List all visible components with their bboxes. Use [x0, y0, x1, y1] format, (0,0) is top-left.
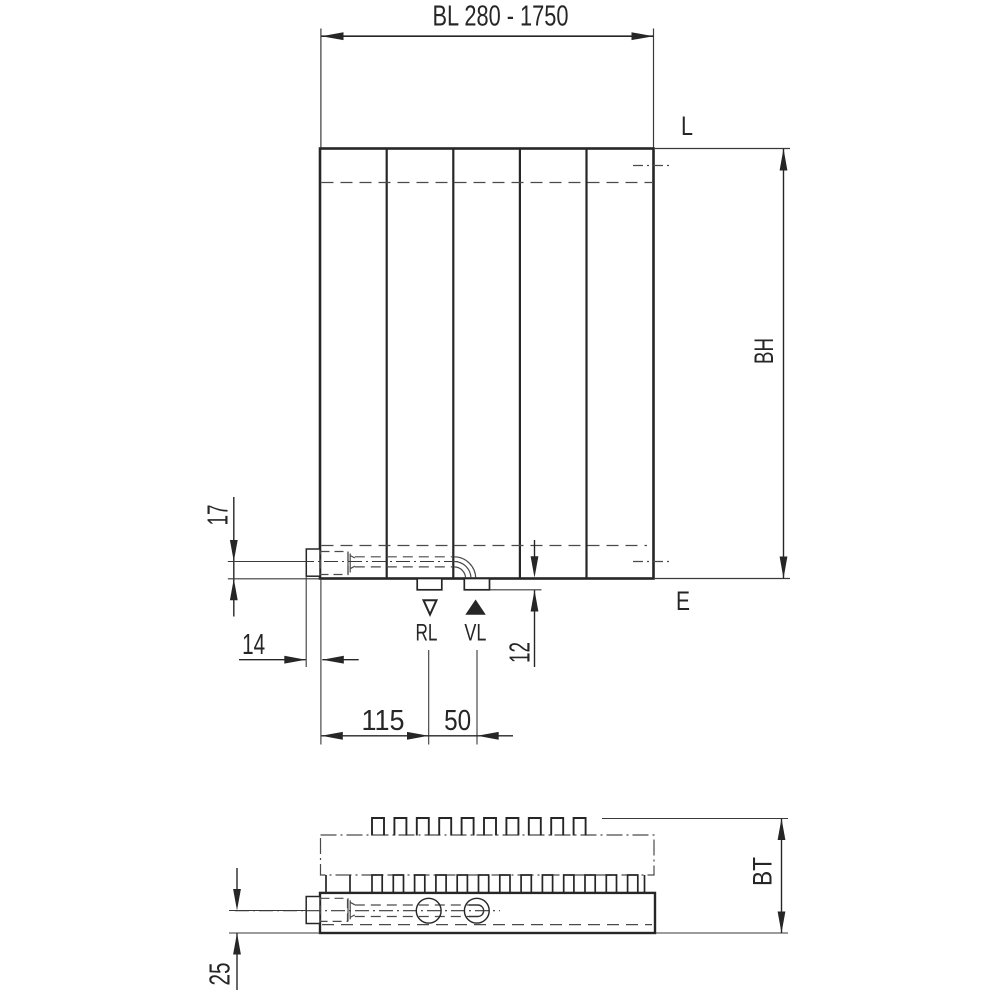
svg-text:12: 12 [505, 642, 537, 663]
svg-text:50: 50 [444, 705, 471, 737]
svg-text:BH: BH [749, 338, 779, 364]
svg-text:BT: BT [748, 857, 778, 886]
svg-text:RL: RL [416, 620, 438, 647]
svg-text:VL: VL [464, 620, 486, 647]
svg-text:115: 115 [362, 705, 405, 737]
svg-text:17: 17 [203, 505, 235, 526]
svg-text:BL 280 - 1750: BL 280 - 1750 [433, 1, 569, 33]
svg-text:25: 25 [205, 963, 237, 986]
svg-text:E: E [676, 586, 690, 616]
svg-text:L: L [681, 111, 693, 141]
svg-text:14: 14 [242, 629, 265, 661]
